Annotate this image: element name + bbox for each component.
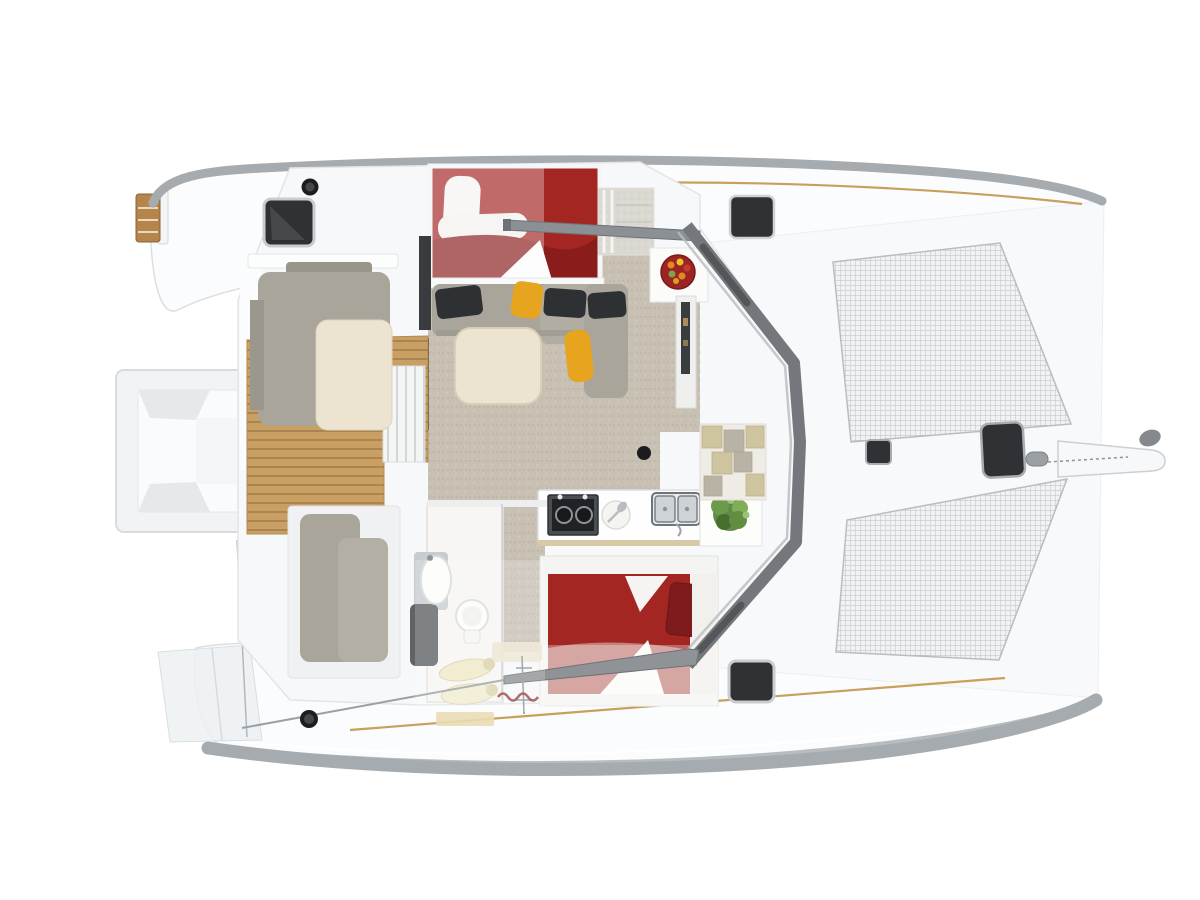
stove-burner-right <box>576 507 592 523</box>
two-burner-stove <box>548 495 598 536</box>
bow-hatch-large <box>981 422 1026 478</box>
plant-leaf-6 <box>743 512 750 519</box>
floorplan-image <box>0 0 1200 900</box>
fruit-shelf <box>650 248 708 302</box>
dinette-table <box>455 328 541 404</box>
winch-bottom-drum <box>304 714 314 724</box>
black-pillow-2 <box>543 288 587 319</box>
entry-steps <box>700 424 766 500</box>
step-tile-7 <box>704 476 722 496</box>
bathroom-top-wall <box>427 500 547 507</box>
tall-locker <box>676 296 696 408</box>
lounge-side-flap <box>250 300 264 410</box>
locker-door-dark <box>681 302 690 374</box>
step-tile-1 <box>702 426 722 448</box>
fruit-orange-1 <box>668 262 675 269</box>
fruit-orange-3 <box>673 278 679 284</box>
step-tile-5 <box>734 452 752 472</box>
lounge-cushion <box>316 320 392 430</box>
saloon-sofa <box>432 280 628 404</box>
fruit-orange-2 <box>679 273 686 280</box>
locker-label-1 <box>683 318 688 326</box>
stove-burner-left <box>556 507 572 523</box>
step-tile-6 <box>746 474 764 496</box>
compression-post <box>637 446 651 460</box>
windlass <box>1026 452 1048 466</box>
bottom-hull-hatch <box>729 661 774 702</box>
beam-endcap <box>503 219 511 231</box>
sink-drain-right <box>685 507 689 511</box>
catamaran-floorplan-svg <box>0 0 1200 900</box>
stove-knob-right <box>583 495 588 500</box>
bath-mat <box>436 712 494 726</box>
step-tile-3 <box>746 426 764 448</box>
cabin-aft-bed <box>540 556 718 707</box>
fruit-apple-red <box>684 265 691 272</box>
hull-steps-top <box>598 188 654 255</box>
winch-top-drum <box>306 183 315 192</box>
anchor-roller <box>1137 427 1163 450</box>
roof-overlay-lower <box>415 560 545 712</box>
plate-with-spoon <box>602 500 630 529</box>
bowsprit-body <box>1058 441 1165 477</box>
coachroof-hatch <box>730 196 774 238</box>
stove-knob-left <box>558 495 563 500</box>
door-track-upper <box>419 236 431 330</box>
black-pillow-1 <box>434 284 483 319</box>
fruit-lemon <box>677 259 684 266</box>
black-pillow-3 <box>587 291 627 320</box>
bow-hatch-small <box>866 440 891 464</box>
locker-label-2 <box>683 340 688 346</box>
step-tile-4 <box>712 452 732 474</box>
yellow-pillow-1 <box>510 280 545 320</box>
helm-seat-2 <box>338 538 388 662</box>
fruit-apple-green <box>669 271 676 278</box>
sink-drain-left <box>663 507 667 511</box>
galley-counter-edge <box>538 540 708 546</box>
step-tile-2 <box>724 430 744 452</box>
